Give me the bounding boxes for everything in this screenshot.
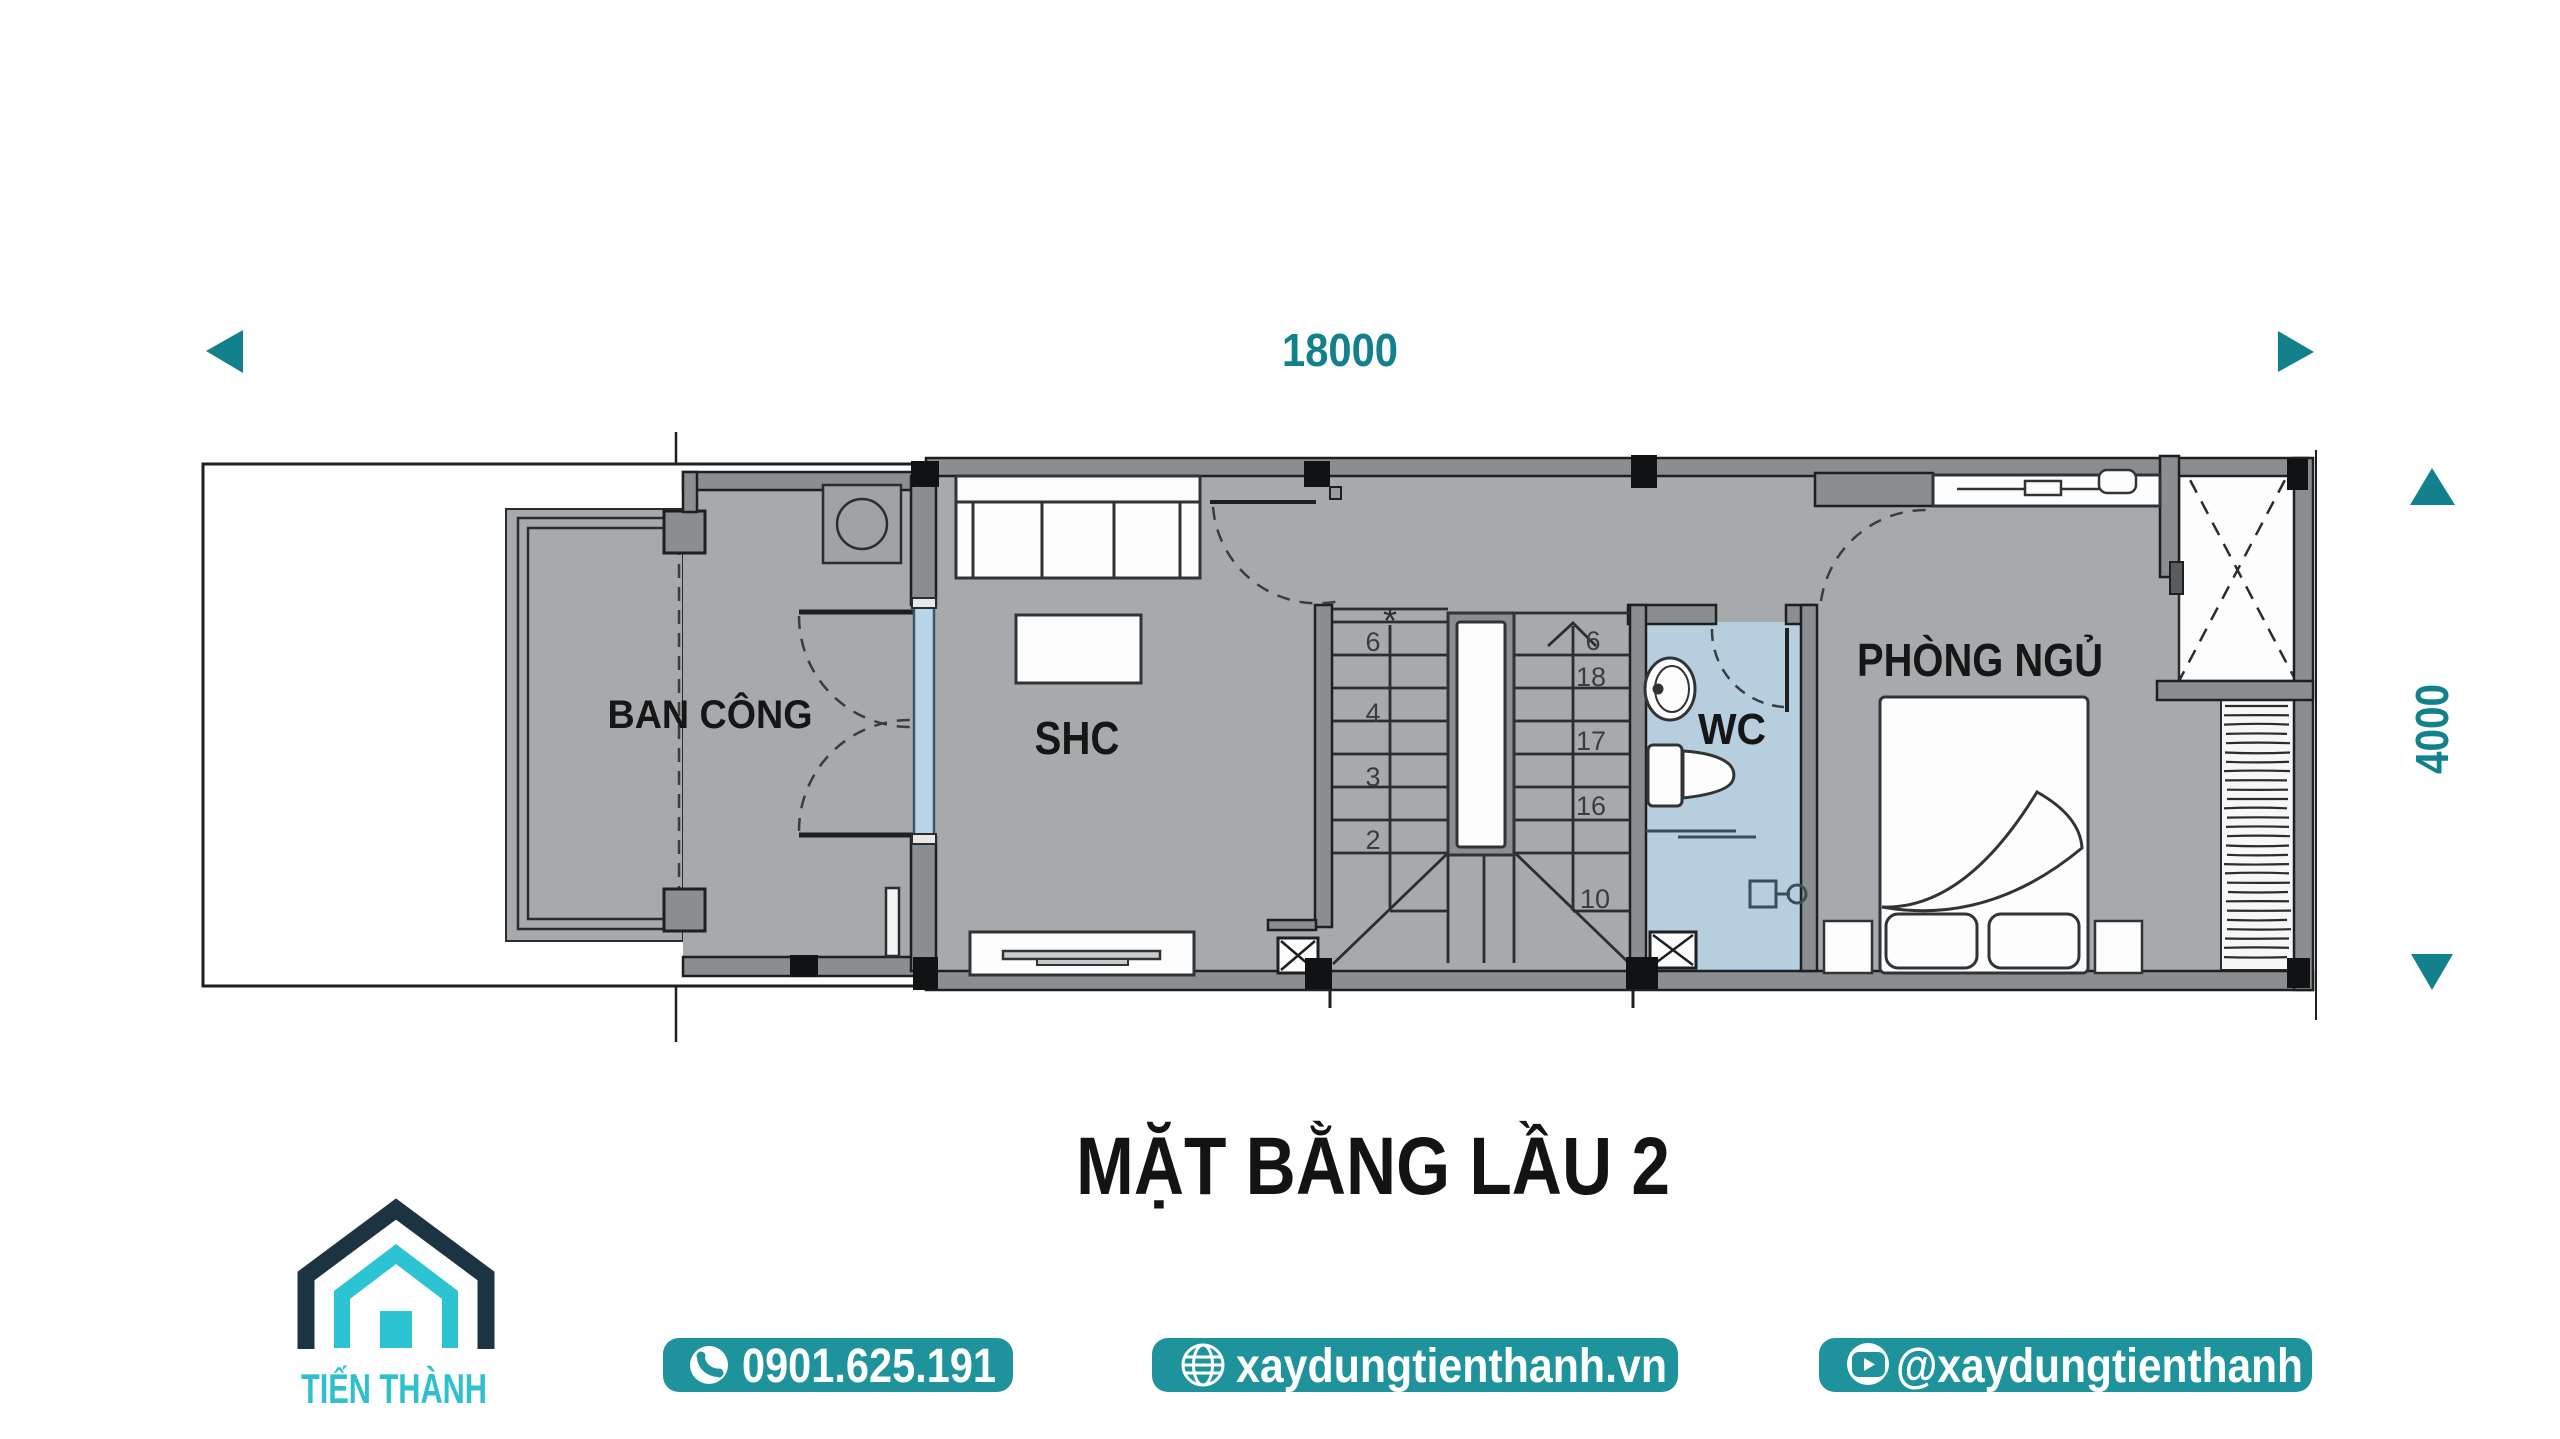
svg-text:3: 3 [1365,762,1380,792]
svg-text:0901.625.191: 0901.625.191 [742,1340,996,1393]
svg-text:4000: 4000 [2406,684,2458,774]
svg-text:xaydungtienthanh.vn: xaydungtienthanh.vn [1236,1340,1667,1393]
svg-text:*: * [1383,600,1397,641]
svg-text:16: 16 [1576,791,1606,821]
svg-text:6: 6 [1585,626,1600,656]
svg-text:@xaydungtienthanh: @xaydungtienthanh [1896,1340,2303,1393]
svg-text:18000: 18000 [1282,324,1398,376]
svg-text:PHÒNG NGỦ: PHÒNG NGỦ [1857,634,2103,686]
svg-text:4: 4 [1365,698,1380,728]
svg-text:MẶT BẰNG LẦU 2: MẶT BẰNG LẦU 2 [1076,1121,1670,1212]
svg-text:TIẾN THÀNH: TIẾN THÀNH [301,1365,487,1412]
svg-text:SHC: SHC [1035,712,1120,764]
svg-text:2: 2 [1365,825,1380,855]
svg-text:17: 17 [1576,726,1606,756]
svg-text:10: 10 [1580,884,1610,914]
svg-text:6: 6 [1365,627,1380,657]
svg-text:WC: WC [1698,705,1766,754]
svg-text:BAN CÔNG: BAN CÔNG [608,691,813,737]
svg-text:18: 18 [1576,662,1606,692]
